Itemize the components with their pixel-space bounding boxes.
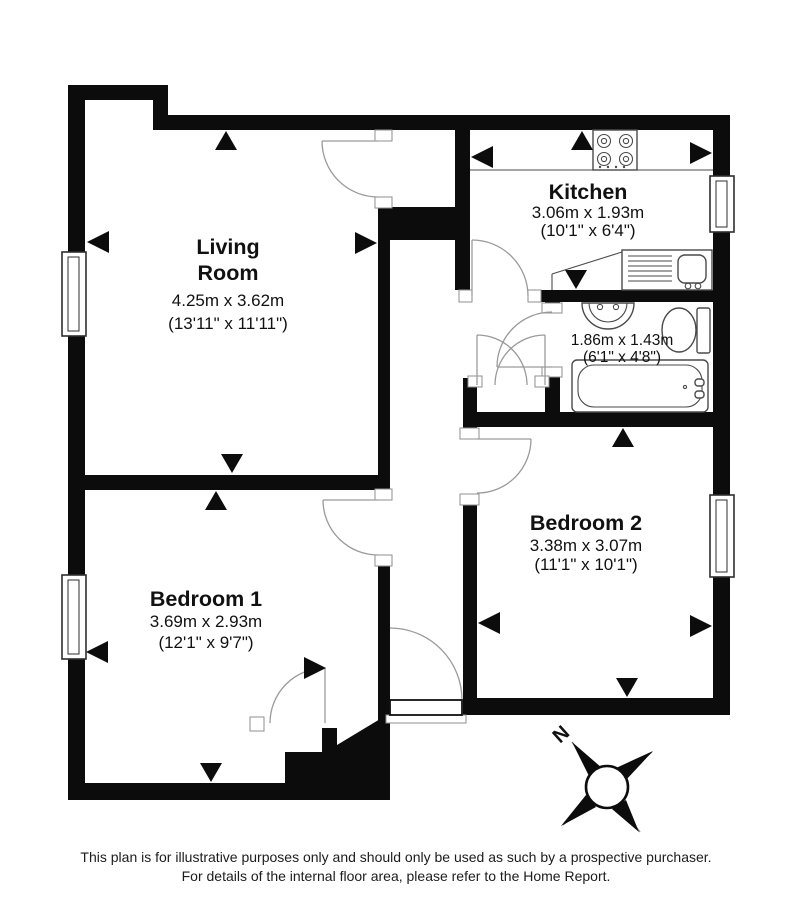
disclaimer: This plan is for illustrative purposes o…: [80, 849, 711, 884]
hall-cupboard-doors: [468, 335, 549, 387]
bathroom-metric: 1.86m x 1.43m: [571, 332, 674, 349]
bedroom2-metric: 3.38m x 3.07m: [530, 536, 642, 555]
bedroom1-window: [62, 575, 86, 659]
compass-rose-icon: N: [549, 722, 653, 832]
kitchen-name: Kitchen: [549, 180, 628, 204]
bedroom1-cupboard-door: [250, 668, 325, 731]
bedroom2-label: Bedroom 2 3.38m x 3.07m (11'1" x 10'1"): [530, 511, 642, 574]
living-room-door: [322, 130, 392, 208]
bedroom1-label: Bedroom 1 3.69m x 2.93m (12'1" x 9'7"): [150, 587, 262, 652]
bedroom2-door: [460, 428, 531, 505]
basin-icon: [582, 303, 634, 329]
bedroom1-imperial: (12'1" x 9'7"): [158, 633, 253, 652]
north-label: N: [549, 722, 574, 748]
living-room-metric: 4.25m x 3.62m: [172, 291, 284, 310]
kitchen-metric: 3.06m x 1.93m: [532, 203, 644, 222]
kitchen-door: [459, 240, 541, 302]
entrance-front-door: [386, 628, 466, 723]
living-room-label: Living Room 4.25m x 3.62m (13'11" x 11'1…: [168, 235, 288, 333]
bedroom1-name: Bedroom 1: [150, 587, 262, 611]
living-room-window: [62, 252, 86, 336]
living-room-imperial: (13'11" x 11'11"): [168, 314, 288, 333]
bathroom-imperial: (6'1" x 4'8"): [583, 349, 661, 366]
bathroom-door: [497, 303, 562, 377]
floor-plan-page: Living Room 4.25m x 3.62m (13'11" x 11'1…: [0, 0, 793, 900]
bedroom1-door: [323, 489, 392, 566]
bathroom-label: 1.86m x 1.43m (6'1" x 4'8"): [571, 332, 674, 366]
living-room-name-line2: Room: [198, 261, 259, 285]
hob-icon: [593, 130, 637, 170]
floor-plan-drawing: Living Room 4.25m x 3.62m (13'11" x 11'1…: [0, 0, 793, 900]
bedroom2-name: Bedroom 2: [530, 511, 642, 535]
kitchen-imperial: (10'1" x 6'4"): [540, 221, 635, 240]
living-room-name-line1: Living: [196, 235, 259, 259]
bedroom1-metric: 3.69m x 2.93m: [150, 612, 262, 631]
bedroom2-imperial: (11'1" x 10'1"): [534, 555, 637, 574]
disclaimer-line1: This plan is for illustrative purposes o…: [80, 849, 711, 865]
bedroom2-window: [710, 495, 734, 577]
kitchen-label: Kitchen 3.06m x 1.93m (10'1" x 6'4"): [532, 180, 644, 240]
kitchen-sink-icon: [622, 250, 712, 290]
kitchen-window: [710, 176, 734, 232]
disclaimer-line2: For details of the internal floor area, …: [182, 868, 611, 884]
bathtub-icon: [572, 360, 708, 412]
